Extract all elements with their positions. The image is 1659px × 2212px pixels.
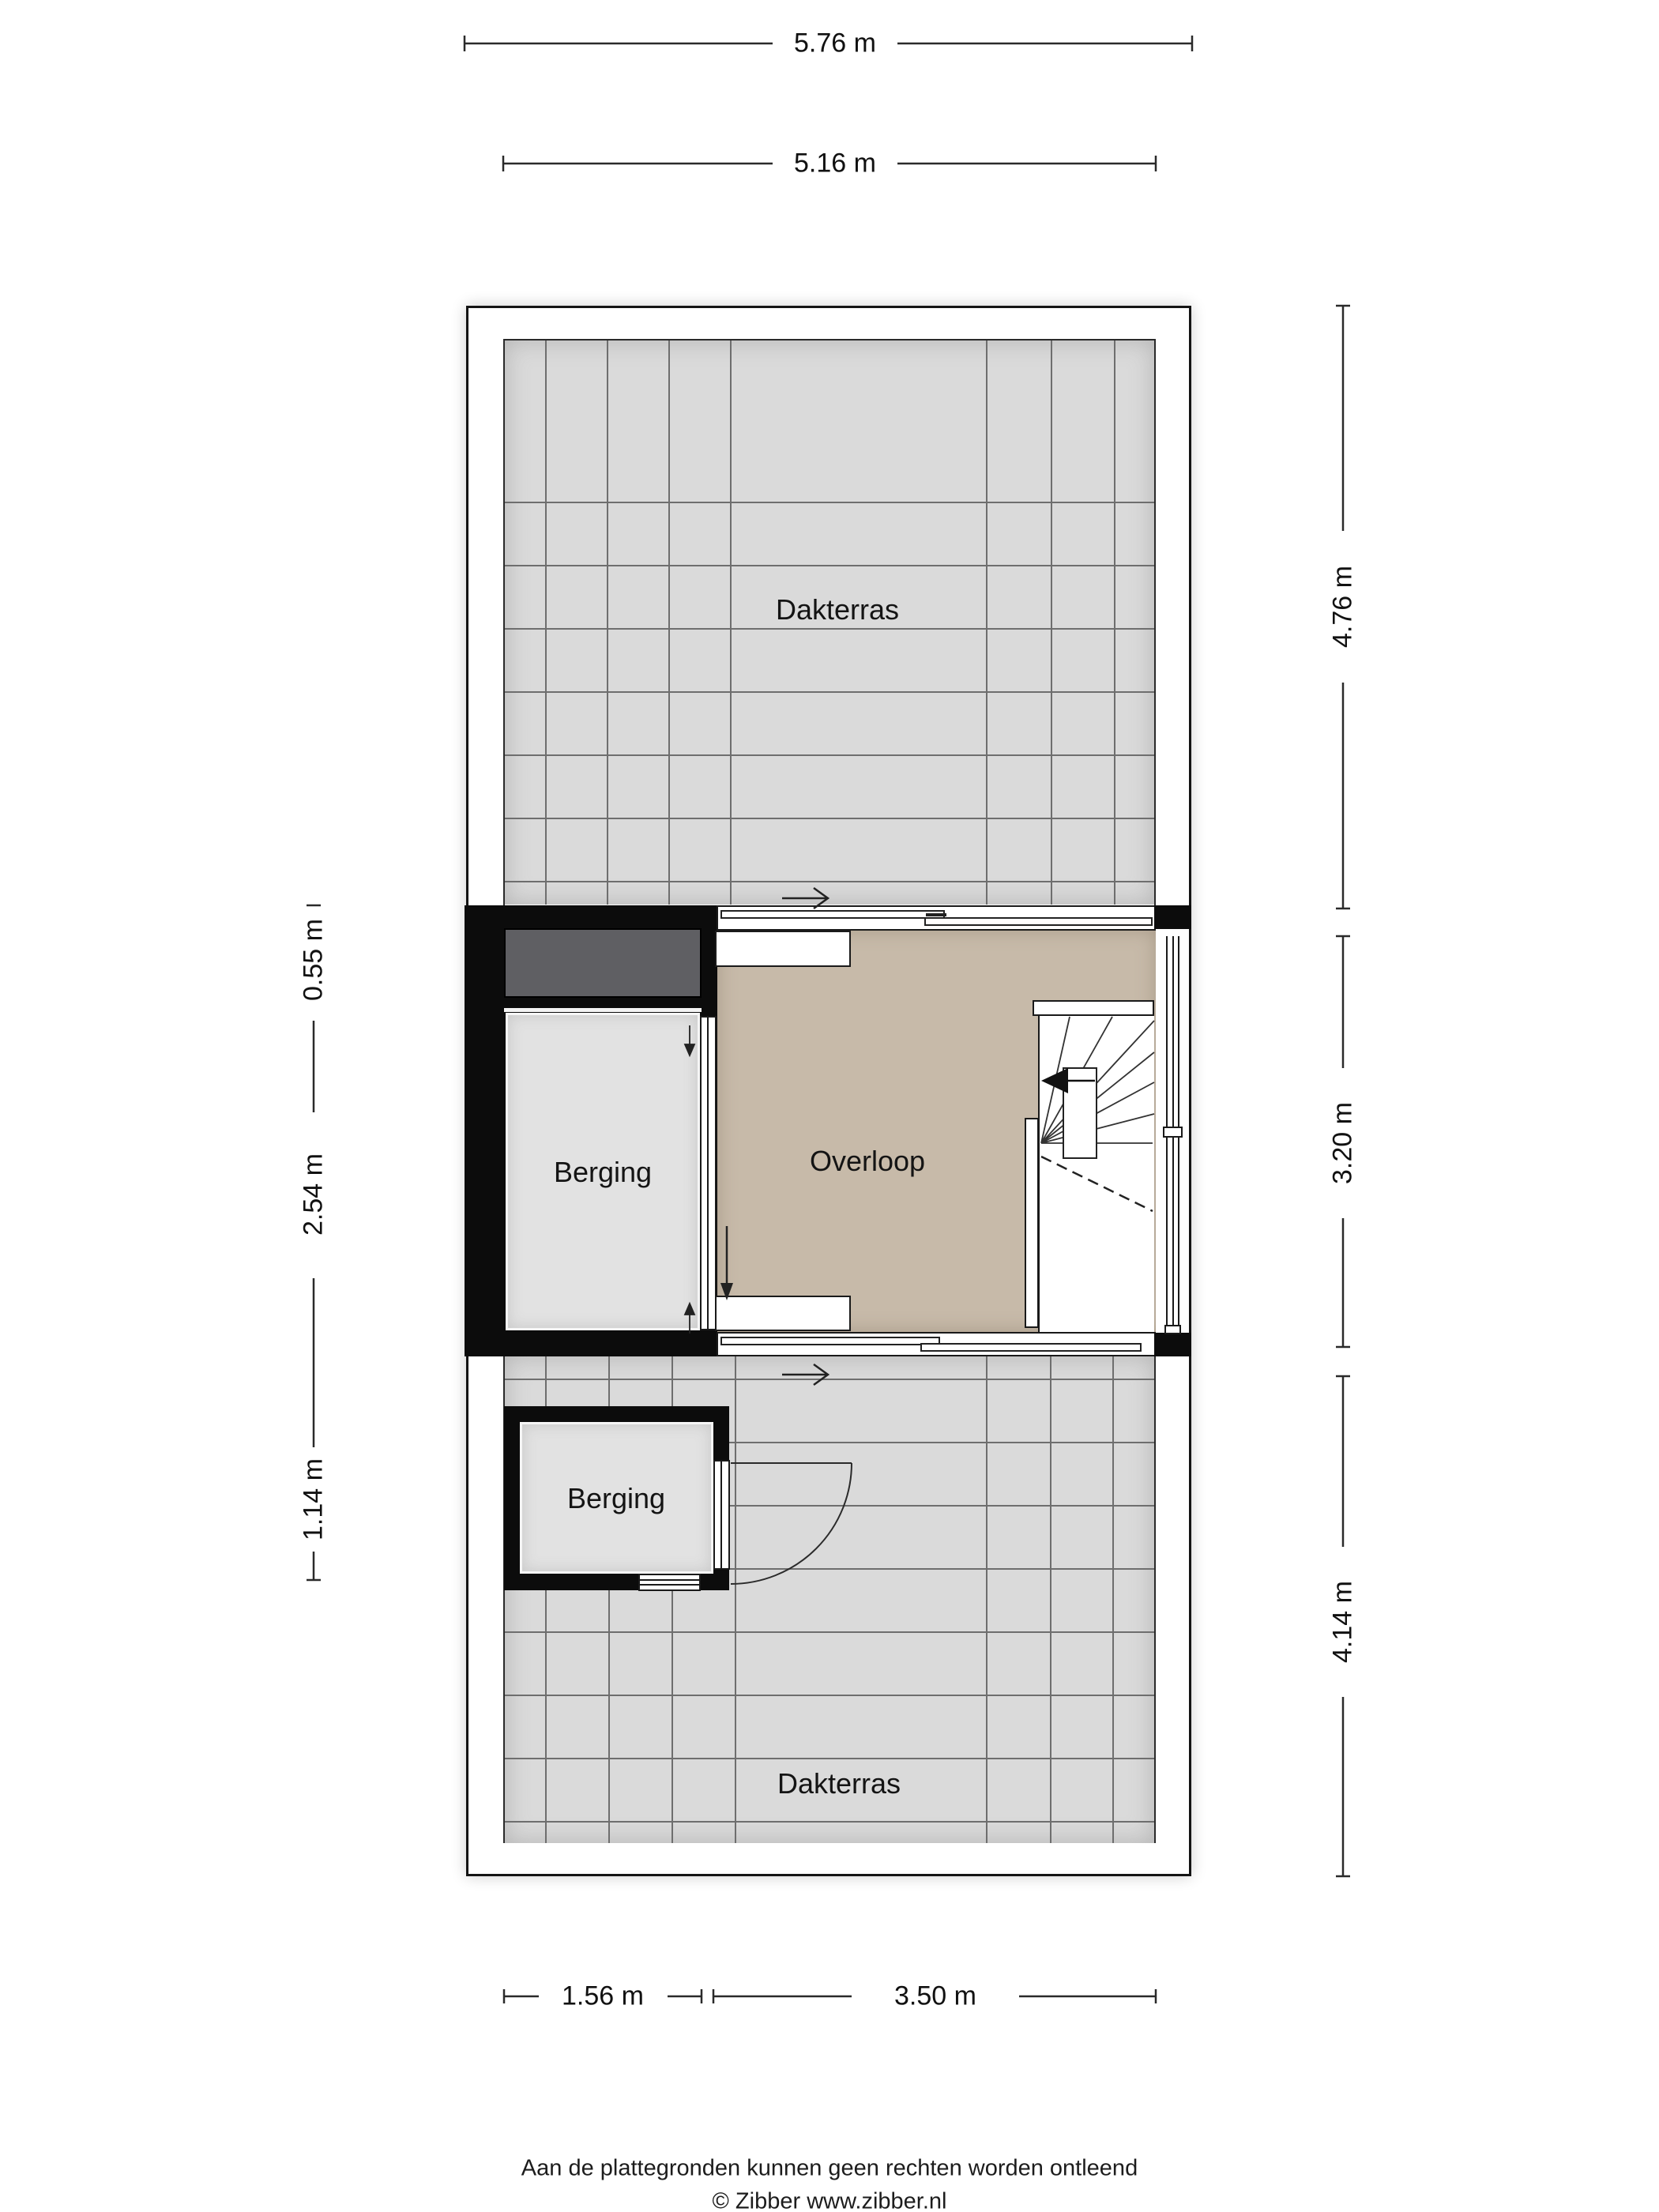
room-label-berging-lower: Berging — [567, 1482, 665, 1515]
stairs-headroom-dashed-line — [1041, 1157, 1153, 1211]
dimension-lines — [307, 36, 1350, 2003]
dim-right-middle: 3.20 m — [1328, 1102, 1359, 1184]
dim-bottom-left: 1.56 m — [562, 1981, 644, 2012]
dim-right-top: 4.76 m — [1328, 566, 1359, 648]
walk-down-arrow-icon — [720, 1226, 733, 1300]
floorplan-canvas: Dakterras Berging Overloop Berging Dakte… — [0, 0, 1659, 2212]
room-label-dakterras-top: Dakterras — [776, 593, 899, 626]
dim-left-bottom: 1.14 m — [299, 1458, 329, 1540]
room-label-berging-upper: Berging — [554, 1156, 652, 1189]
linework-overlay — [0, 0, 1659, 2212]
door-swing-arrow-icon — [685, 1025, 694, 1334]
dim-left-top: 0.55 m — [299, 919, 329, 1001]
dim-right-bottom: 4.14 m — [1328, 1581, 1359, 1663]
slide-direction-arrow-icon — [782, 888, 828, 1385]
door-swing-arc — [731, 1463, 852, 1584]
room-label-overloop: Overloop — [810, 1145, 925, 1178]
dim-width-inner: 5.16 m — [794, 149, 876, 179]
dim-bottom-right: 3.50 m — [894, 1981, 976, 2012]
footer-disclaimer: Aan de plattegronden kunnen geen rechten… — [521, 2156, 1138, 2182]
room-label-dakterras-bottom: Dakterras — [777, 1767, 901, 1800]
dim-width-outer: 5.76 m — [794, 28, 876, 59]
dim-left-middle: 2.54 m — [299, 1153, 329, 1236]
footer-credit: © Zibber www.zibber.nl — [713, 2189, 947, 2212]
